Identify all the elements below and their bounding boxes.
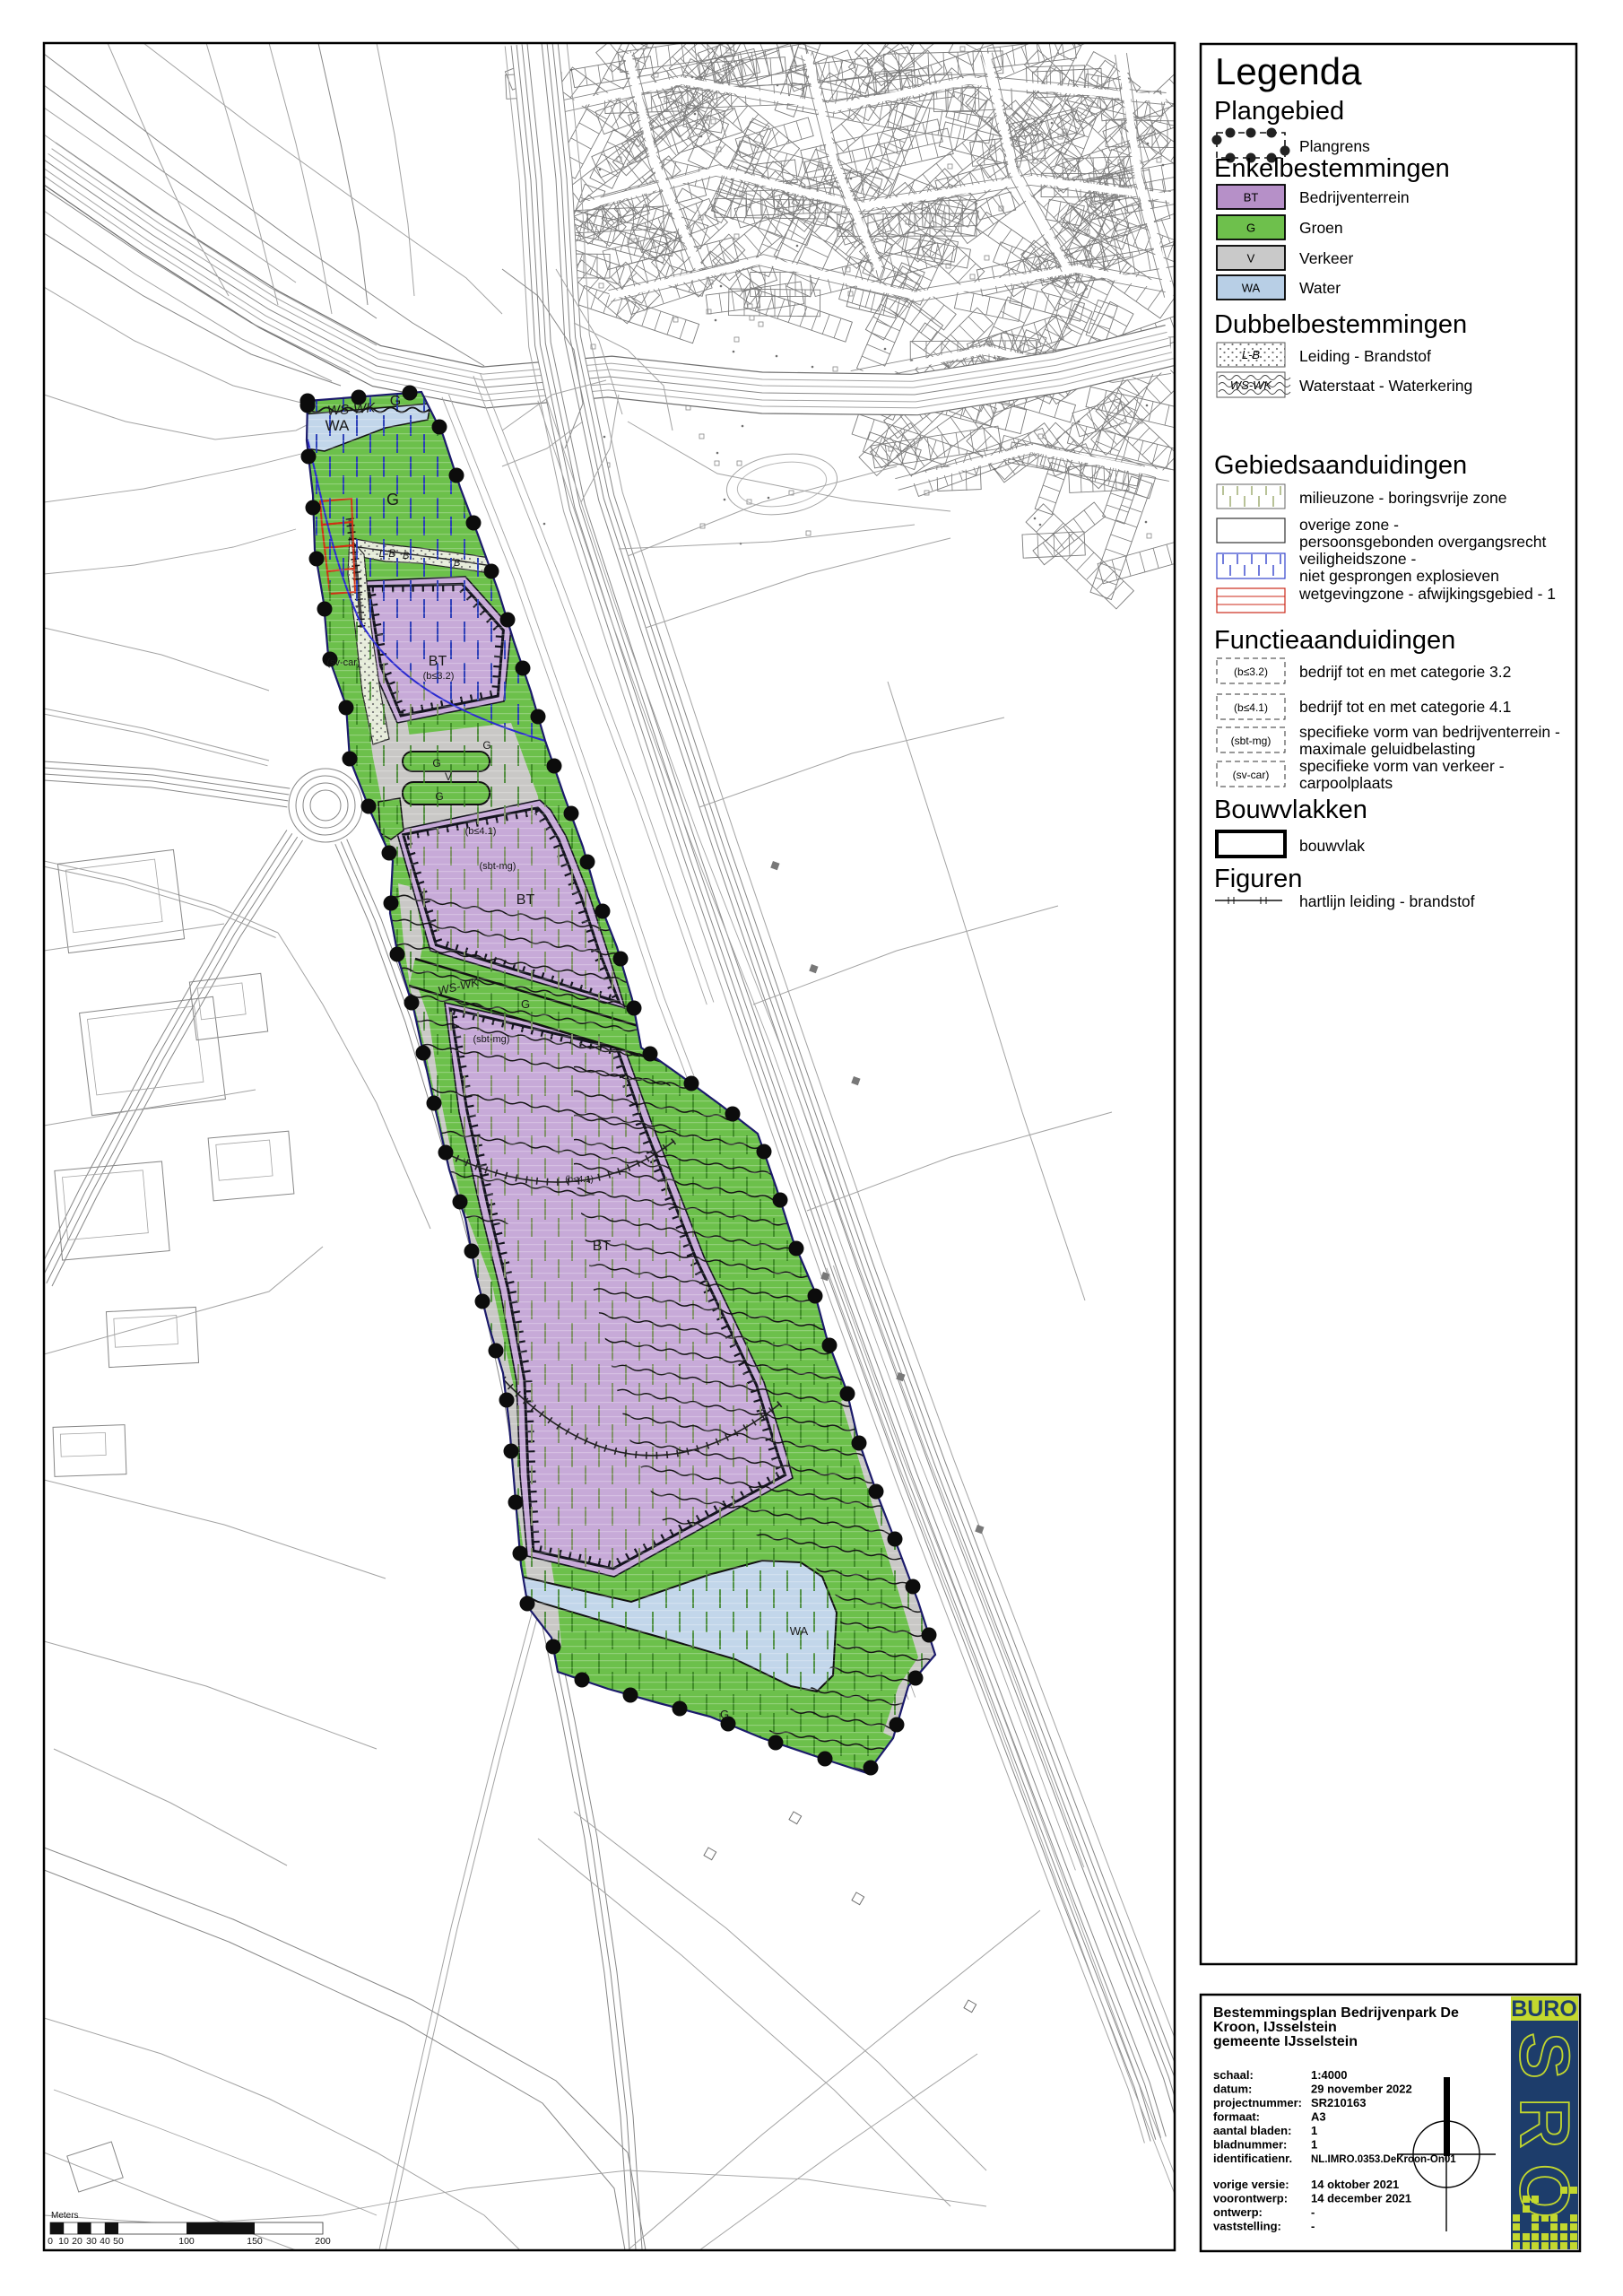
svg-text:(b≤4.1): (b≤4.1): [1234, 701, 1268, 714]
svg-text:bladnummer:: bladnummer:: [1213, 2138, 1287, 2152]
svg-text:G: G: [435, 790, 443, 803]
svg-text:0: 0: [48, 2236, 53, 2247]
svg-text:14 december 2021: 14 december 2021: [1311, 2192, 1411, 2205]
svg-text:bedrijf tot en met categorie 3: bedrijf tot en met categorie 3.2: [1299, 663, 1511, 681]
svg-text:10: 10: [58, 2236, 69, 2247]
svg-text:NL.IMRO.0353.DeKroon-On01: NL.IMRO.0353.DeKroon-On01: [1311, 2154, 1456, 2165]
svg-text:V: V: [445, 770, 452, 783]
svg-text:Dubbelbestemmingen: Dubbelbestemmingen: [1214, 310, 1467, 339]
svg-text:Bestemmingsplan Bedrijvenpark: Bestemmingsplan Bedrijvenpark De: [1213, 2005, 1459, 2021]
svg-text:WA: WA: [1242, 282, 1261, 295]
svg-text:WS-WK: WS-WK: [1230, 378, 1273, 392]
svg-text:Kroon, IJsselstein: Kroon, IJsselstein: [1213, 2020, 1337, 2035]
svg-text:G: G: [720, 1708, 729, 1721]
svg-text:(sv-car): (sv-car): [1233, 769, 1270, 781]
svg-text:maximale geluidbelasting: maximale geluidbelasting: [1299, 740, 1476, 758]
svg-text:40: 40: [100, 2236, 110, 2247]
svg-text:Groen: Groen: [1299, 219, 1343, 237]
svg-text:carpoolplaats: carpoolplaats: [1299, 774, 1393, 792]
svg-text:G: G: [1246, 222, 1255, 235]
svg-text:projectnummer:: projectnummer:: [1213, 2096, 1302, 2109]
svg-text:specifieke vorm van bedrijvent: specifieke vorm van bedrijventerrein -: [1299, 723, 1560, 741]
svg-text:gemeente IJsselstein: gemeente IJsselstein: [1213, 2034, 1358, 2049]
svg-text:30: 30: [86, 2236, 97, 2247]
svg-text:veiligheidszone -: veiligheidszone -: [1299, 550, 1417, 568]
svg-text:-: -: [1311, 2205, 1315, 2219]
svg-text:Plangrens: Plangrens: [1299, 137, 1370, 155]
svg-text:G: G: [482, 739, 490, 752]
svg-text:R: R: [1506, 2098, 1584, 2148]
svg-text:Figuren: Figuren: [1214, 865, 1302, 893]
svg-text:persoonsgebonden overgangsrech: persoonsgebonden overgangsrecht: [1299, 533, 1546, 551]
svg-text:SR210163: SR210163: [1311, 2096, 1366, 2109]
svg-text:overige zone -: overige zone -: [1299, 516, 1399, 534]
svg-text:(sv-car): (sv-car): [326, 657, 360, 668]
svg-text:A3: A3: [1311, 2110, 1326, 2124]
svg-text:hartlijn leiding - brandstof: hartlijn leiding - brandstof: [1299, 892, 1475, 910]
svg-text:Verkeer: Verkeer: [1299, 249, 1353, 267]
svg-text:Bouwvlakken: Bouwvlakken: [1214, 796, 1367, 824]
svg-text:V: V: [1247, 252, 1255, 265]
svg-text:schaal:: schaal:: [1213, 2068, 1254, 2082]
svg-text:(sbt-mg): (sbt-mg): [1231, 735, 1271, 747]
svg-text:bedrijf tot en met categorie 4: bedrijf tot en met categorie 4.1: [1299, 698, 1511, 716]
svg-text:1: 1: [1311, 2138, 1317, 2152]
svg-text:-: -: [1311, 2220, 1315, 2233]
svg-text:BURO: BURO: [1511, 1996, 1577, 2022]
svg-text:Legenda: Legenda: [1215, 50, 1362, 92]
svg-text:BT: BT: [1244, 191, 1259, 204]
svg-text:L-B: L-B: [1242, 348, 1261, 361]
svg-text:aantal bladen:: aantal bladen:: [1213, 2124, 1291, 2137]
svg-text:vaststelling:: vaststelling:: [1213, 2220, 1281, 2233]
svg-text:wetgevingzone - afwijkingsgebi: wetgevingzone - afwijkingsgebied - 1: [1298, 585, 1556, 603]
svg-text:Functieaanduidingen: Functieaanduidingen: [1214, 626, 1455, 655]
svg-text:G: G: [390, 394, 401, 409]
svg-text:200: 200: [315, 2236, 331, 2247]
svg-text:20: 20: [72, 2236, 82, 2247]
svg-text:BT: BT: [429, 654, 447, 669]
svg-text:BT: BT: [593, 1239, 612, 1254]
svg-text:(b≤4.1): (b≤4.1): [565, 1175, 594, 1185]
svg-text:Water: Water: [1299, 279, 1341, 297]
svg-text:bouwvlak: bouwvlak: [1299, 837, 1365, 855]
svg-text:ontwerp:: ontwerp:: [1213, 2205, 1263, 2219]
svg-text:identificatienr.: identificatienr.: [1213, 2152, 1292, 2165]
svg-text:1:4000: 1:4000: [1311, 2068, 1347, 2082]
svg-text:14 oktober 2021: 14 oktober 2021: [1311, 2178, 1399, 2191]
svg-text:Meters: Meters: [51, 2211, 79, 2221]
svg-text:niet gesprongen explosieven: niet gesprongen explosieven: [1299, 567, 1499, 585]
svg-text:(b≤4.1): (b≤4.1): [465, 826, 497, 837]
svg-text:WA: WA: [790, 1624, 809, 1638]
svg-text:voorontwerp:: voorontwerp:: [1213, 2192, 1288, 2205]
svg-text:specifieke vorm van verkeer -: specifieke vorm van verkeer -: [1299, 757, 1505, 775]
svg-text:50: 50: [113, 2236, 124, 2247]
svg-text:Leiding - Brandstof: Leiding - Brandstof: [1299, 347, 1431, 365]
svg-text:(sbt-mg): (sbt-mg): [480, 861, 516, 872]
svg-text:G: G: [386, 491, 399, 509]
svg-text:(b≤3.2): (b≤3.2): [423, 671, 455, 682]
svg-text:Bedrijventerrein: Bedrijventerrein: [1299, 188, 1410, 206]
svg-text:(sbt-mg): (sbt-mg): [473, 1034, 510, 1045]
svg-text:vorige versie:: vorige versie:: [1213, 2178, 1289, 2191]
svg-text:29 november 2022: 29 november 2022: [1311, 2083, 1412, 2096]
svg-text:Enkelbestemmingen: Enkelbestemmingen: [1214, 154, 1450, 183]
svg-text:datum:: datum:: [1213, 2083, 1252, 2096]
svg-text:BT: BT: [516, 892, 535, 908]
svg-text:Plangebied: Plangebied: [1214, 97, 1344, 126]
svg-text:100: 100: [178, 2236, 195, 2247]
svg-text:formaat:: formaat:: [1213, 2110, 1260, 2124]
svg-text:S: S: [1506, 2032, 1584, 2079]
svg-text:G: G: [432, 757, 440, 770]
svg-text:Waterstaat - Waterkering: Waterstaat - Waterkering: [1299, 377, 1472, 395]
svg-text:(b≤3.2): (b≤3.2): [1234, 665, 1268, 678]
svg-text:milieuzone - boringsvrije zone: milieuzone - boringsvrije zone: [1299, 489, 1507, 507]
svg-text:G: G: [521, 997, 530, 1011]
svg-text:150: 150: [247, 2236, 263, 2247]
svg-text:L-B: L-B: [379, 547, 396, 560]
svg-text:1: 1: [1311, 2124, 1317, 2137]
svg-text:WA: WA: [325, 417, 350, 434]
svg-text:Gebiedsaanduidingen: Gebiedsaanduidingen: [1214, 451, 1467, 480]
